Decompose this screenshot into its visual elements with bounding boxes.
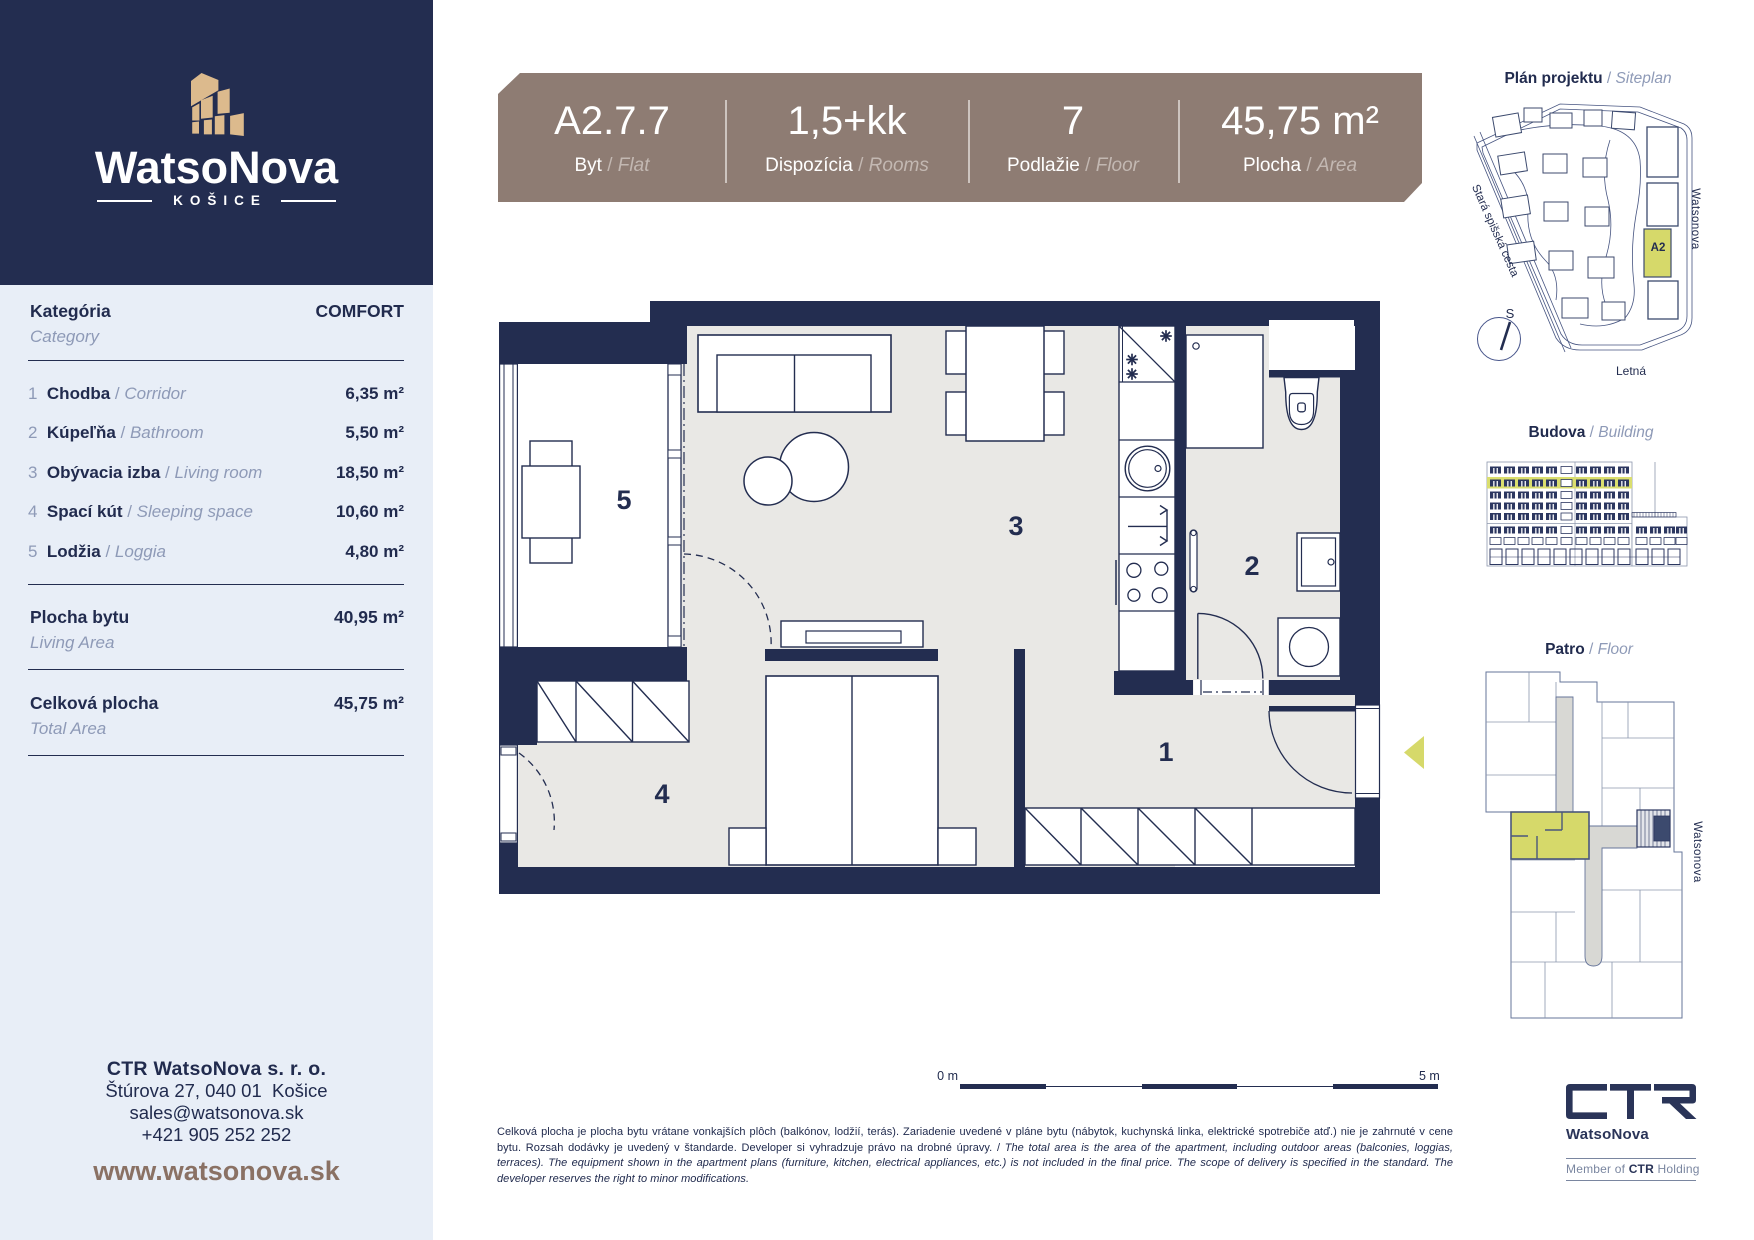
svg-text:A2: A2 <box>1651 242 1666 254</box>
svg-text:3: 3 <box>1008 511 1023 541</box>
svg-text:5: 5 <box>616 485 631 515</box>
svg-text:Watsonova: Watsonova <box>1691 821 1703 883</box>
svg-text:1: 1 <box>1158 737 1173 767</box>
svg-text:Watsonova: Watsonova <box>1689 188 1701 250</box>
svg-text:S: S <box>1506 306 1515 321</box>
svg-text:4: 4 <box>654 779 669 809</box>
svg-text:Letná: Letná <box>1616 364 1646 378</box>
svg-text:2: 2 <box>1244 551 1259 581</box>
